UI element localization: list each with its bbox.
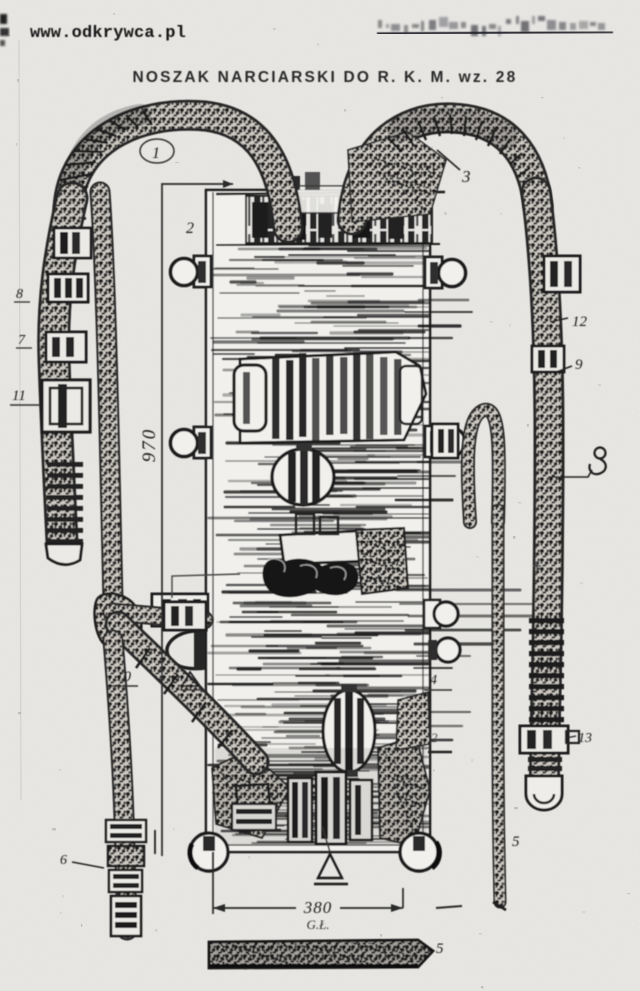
svg-text:380: 380 bbox=[303, 898, 333, 917]
svg-text:6: 6 bbox=[60, 853, 67, 868]
svg-text:1: 1 bbox=[152, 145, 160, 162]
svg-text:7: 7 bbox=[18, 333, 26, 348]
svg-text:5: 5 bbox=[512, 834, 520, 850]
svg-text:12: 12 bbox=[572, 314, 588, 330]
svg-text:3: 3 bbox=[461, 167, 471, 186]
svg-text:www.odkrywca.pl: www.odkrywca.pl bbox=[30, 24, 186, 43]
svg-text:5: 5 bbox=[436, 941, 444, 957]
svg-text:11: 11 bbox=[12, 388, 26, 404]
svg-text:970: 970 bbox=[139, 428, 160, 463]
svg-text:2: 2 bbox=[431, 730, 438, 745]
svg-text:G.Ł.: G.Ł. bbox=[306, 917, 329, 932]
svg-text:2: 2 bbox=[186, 220, 194, 237]
svg-text:8: 8 bbox=[16, 287, 23, 302]
svg-text:10: 10 bbox=[116, 669, 132, 685]
svg-text:9: 9 bbox=[575, 357, 583, 373]
svg-text:NOSZAK NARCIARSKI DO R. K. M.: NOSZAK NARCIARSKI DO R. K. M. wz. 28 bbox=[133, 69, 518, 86]
svg-text:13: 13 bbox=[578, 731, 592, 746]
svg-text:4: 4 bbox=[430, 673, 437, 688]
